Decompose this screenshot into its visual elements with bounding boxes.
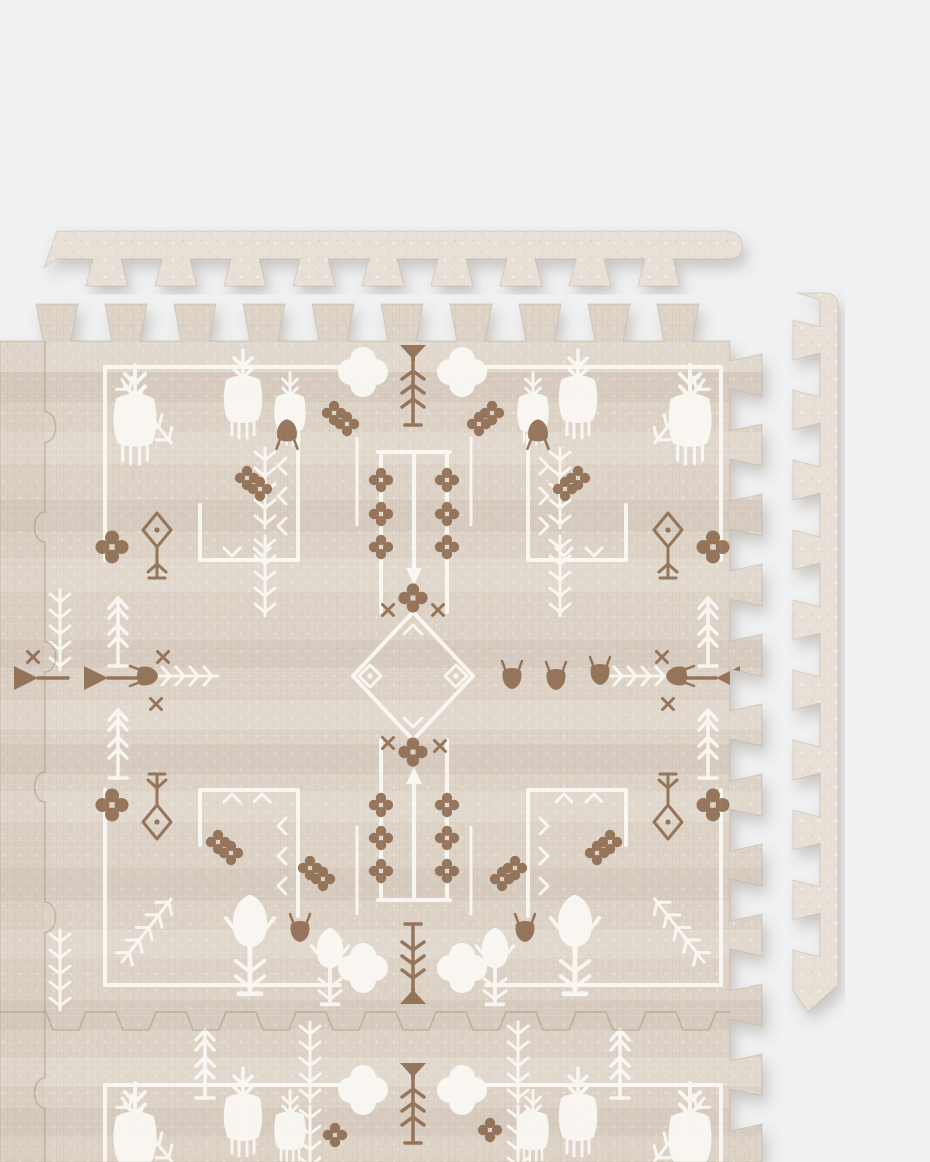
front-mat: [0, 304, 790, 1162]
product-photo-scene: [0, 0, 930, 1162]
left-tile-tint: [0, 341, 45, 1162]
front-mat-surface: [0, 304, 790, 1162]
play-mat-illustration: [0, 0, 930, 1162]
